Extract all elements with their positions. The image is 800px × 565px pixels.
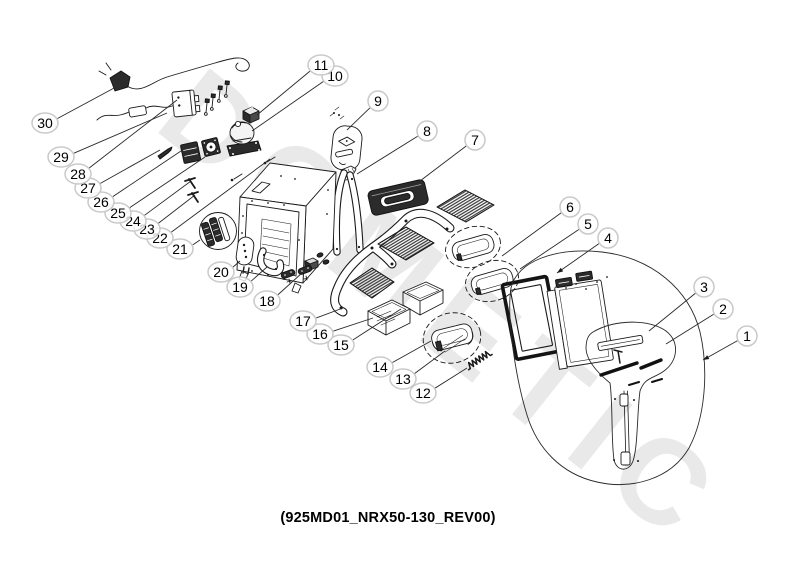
callout-number-20: 20: [213, 264, 229, 280]
callout-3: 3: [649, 277, 714, 331]
callout-number-15: 15: [333, 337, 349, 353]
callout-number-11: 11: [314, 57, 329, 73]
callout-1: 1: [703, 326, 757, 360]
vent-detail-circle: [200, 213, 237, 250]
callout-number-13: 13: [395, 371, 411, 387]
callout-number-6: 6: [566, 199, 574, 215]
power-module: [180, 142, 201, 164]
leader-line-9: [347, 108, 370, 130]
callout-number-9: 9: [374, 93, 382, 109]
callout-2: 2: [666, 299, 733, 344]
callout-number-17: 17: [295, 313, 311, 329]
drawing-number-caption: (925MD01_NRX50-130_REV00): [280, 510, 495, 526]
callout-6: 6: [502, 197, 580, 256]
callout-number-3: 3: [700, 279, 708, 295]
leader-line-2: [666, 314, 714, 344]
cover-plate: [330, 107, 363, 171]
callout-number-18: 18: [259, 293, 275, 309]
callout-4: 4: [557, 228, 618, 273]
leader-line-7: [416, 146, 466, 184]
leader-line-8: [357, 136, 418, 174]
leader-line-24: [145, 181, 191, 215]
diagram-canvas: DOMETIC: [0, 0, 800, 565]
leader-line-27: [100, 150, 160, 183]
leader-line-30: [57, 87, 116, 118]
callout-number-30: 30: [37, 115, 53, 131]
callout-number-12: 12: [415, 385, 431, 401]
callout-9: 9: [347, 91, 388, 130]
callout-number-28: 28: [70, 166, 86, 182]
leader-line-3: [649, 293, 695, 331]
leader-arrow-4: [557, 268, 563, 273]
callout-number-8: 8: [423, 123, 431, 139]
leader-line-21: [193, 240, 200, 245]
leader-line-6: [502, 213, 561, 256]
callout-number-5: 5: [584, 216, 592, 232]
cooling-fan: [201, 137, 220, 156]
leader-line-5: [520, 230, 579, 269]
callout-30: 30: [32, 87, 116, 133]
leader-line-4: [557, 244, 599, 273]
dometic-watermark: DOMETIC: [136, 43, 751, 565]
callout-number-16: 16: [312, 326, 328, 342]
callout-number-1: 1: [743, 328, 751, 344]
callout-number-21: 21: [172, 241, 188, 257]
callout-5: 5: [520, 214, 598, 269]
callout-number-19: 19: [232, 279, 248, 295]
callout-8: 8: [357, 121, 437, 174]
callout-number-2: 2: [719, 301, 727, 317]
callout-number-7: 7: [471, 132, 479, 148]
callout-number-29: 29: [53, 149, 69, 165]
callout-number-14: 14: [372, 359, 388, 375]
callout-26: 26: [88, 151, 181, 212]
exploded-parts-diagram: DOMETIC: [0, 0, 800, 565]
callout-number-4: 4: [604, 230, 612, 246]
